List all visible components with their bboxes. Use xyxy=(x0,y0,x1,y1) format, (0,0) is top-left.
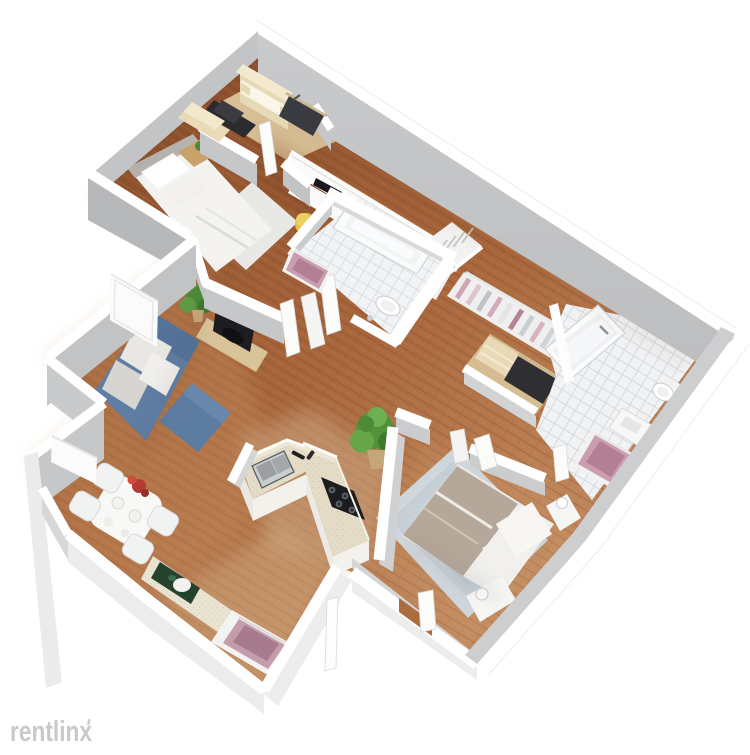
svg-text:rentlinx: rentlinx xyxy=(10,716,92,748)
